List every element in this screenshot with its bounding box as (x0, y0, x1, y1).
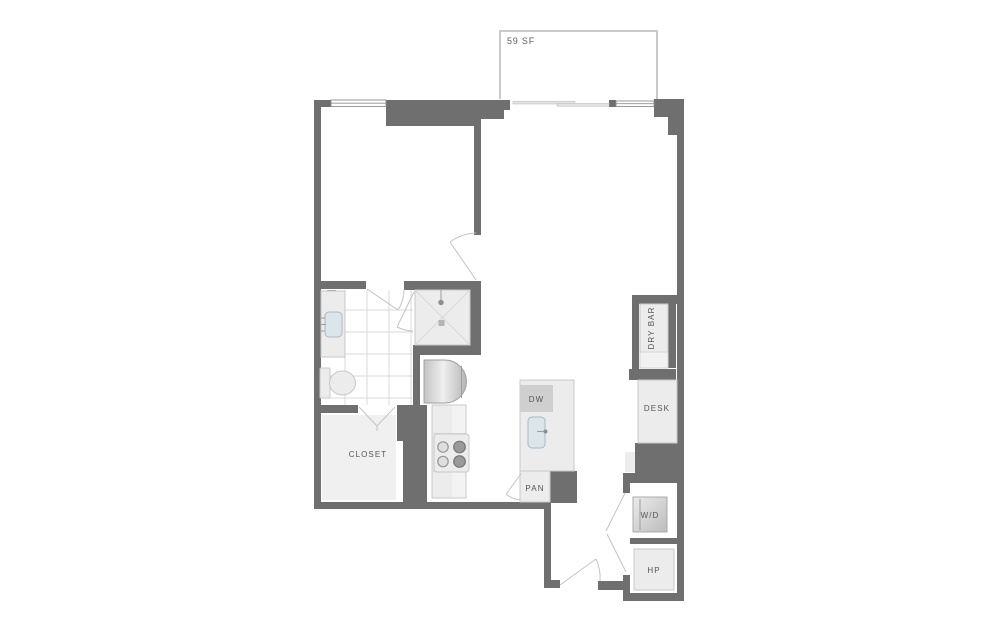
pantry-label: PAN (525, 484, 544, 493)
wall-niche (625, 452, 635, 472)
shower (397, 290, 470, 345)
balcony: 59 SF (500, 31, 657, 99)
bedroom-door-swing (450, 233, 476, 280)
vanity-sink (325, 312, 342, 337)
entry-door-swing (560, 559, 600, 585)
floor-plan-canvas: 59 SF (0, 0, 998, 626)
bathroom-door-swing (367, 289, 404, 310)
closet-label: CLOSET (349, 450, 388, 459)
island-faucet-icon (544, 430, 548, 434)
shower-head-icon (438, 300, 443, 305)
burner-icon (454, 456, 466, 468)
dry-bar-label: DRY BAR (647, 307, 656, 350)
walls (314, 99, 684, 601)
dishwasher-label: DW (529, 395, 545, 404)
washer-dryer-label: W/D (641, 511, 660, 520)
island-sink (528, 417, 545, 448)
balcony-area-label: 59 SF (507, 36, 535, 46)
balcony-sliding-door-panel (557, 103, 609, 106)
burner-icon (438, 456, 448, 466)
floor-plan-page: 59 SF (0, 0, 998, 626)
closet: CLOSET (322, 407, 396, 500)
burner-icon (454, 441, 466, 453)
dry-bar-shelf (640, 352, 668, 368)
pantry-door-swing (506, 474, 521, 500)
utility-closet-doors (606, 493, 626, 572)
stove (434, 434, 469, 472)
burner-icon (438, 442, 448, 452)
toilet-bowl (330, 371, 356, 395)
desk-label: DESK (644, 404, 670, 413)
shower-drain (439, 320, 445, 326)
heat-pump-label: HP (647, 566, 660, 575)
toilet-tank (320, 368, 330, 398)
water-heater (424, 360, 467, 403)
